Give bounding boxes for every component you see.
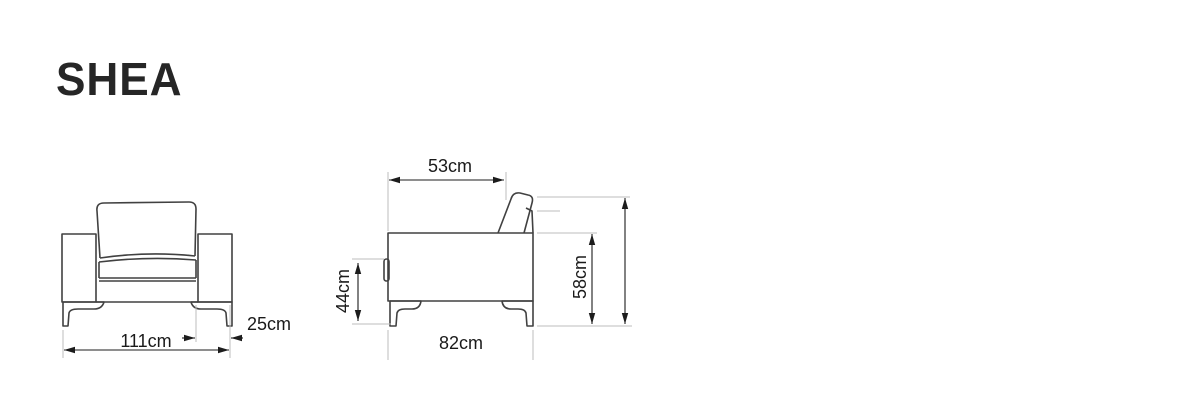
front-seat-top-seam (99, 258, 196, 262)
side-view-drawing (384, 193, 533, 326)
side-view-dimensions (352, 172, 632, 360)
front-cushion-seam (100, 254, 195, 258)
front-back-cushion (97, 202, 196, 258)
dim-label-arm-height: 58cm (571, 255, 589, 299)
front-left-arm (62, 234, 96, 302)
front-right-leg (191, 302, 232, 326)
front-seat-cushion (99, 260, 196, 281)
side-body (388, 233, 533, 301)
dim-label-seat-depth: 53cm (428, 157, 472, 175)
front-left-leg (63, 302, 104, 326)
dimension-drawing (0, 0, 1182, 414)
side-front-piping (384, 259, 389, 281)
product-dimension-sheet: SHEA (0, 0, 1182, 414)
dim-label-arm-width: 25cm (247, 315, 291, 333)
dim-label-seat-height: 44cm (334, 269, 352, 313)
side-back-cushion (498, 193, 533, 233)
side-extension-lines (352, 172, 632, 360)
side-left-leg (390, 301, 421, 326)
front-right-arm (198, 234, 232, 302)
dim-label-overall-width: 111cm (120, 332, 171, 350)
side-right-leg (502, 301, 533, 326)
dim-label-overall-depth: 82cm (439, 334, 483, 352)
front-view-drawing (62, 202, 232, 326)
